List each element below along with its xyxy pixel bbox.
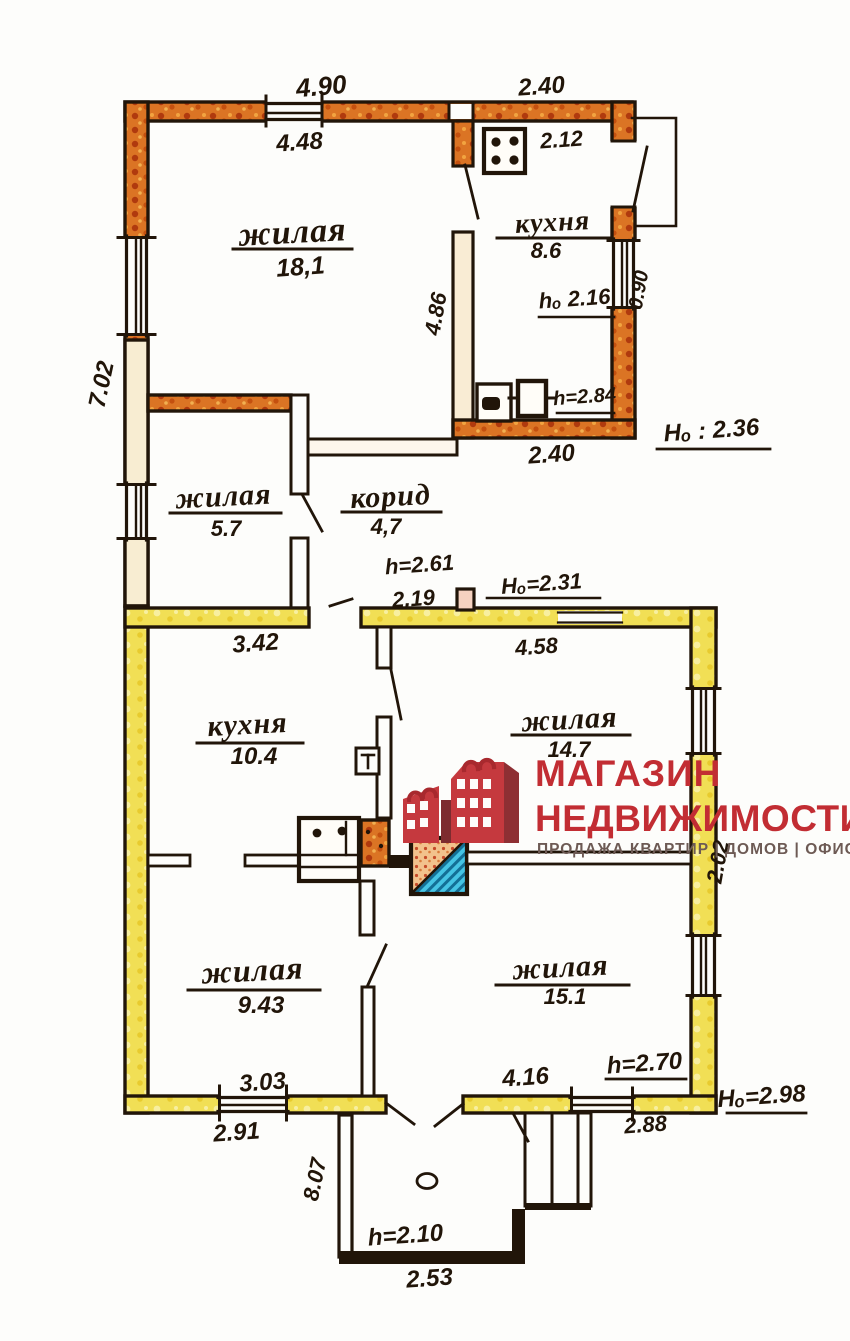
svg-text:8.6: 8.6 [531, 238, 562, 263]
svg-text:кухня: кухня [514, 205, 591, 240]
svg-text:10.4: 10.4 [231, 743, 278, 770]
svg-text:кухня: кухня [207, 706, 289, 743]
svg-text:h=2.84: h=2.84 [552, 384, 616, 410]
svg-text:МАГАЗИН: МАГАЗИН [535, 753, 721, 794]
svg-text:2.53: 2.53 [404, 1263, 454, 1293]
svg-text:2.88: 2.88 [622, 1111, 668, 1139]
svg-text:4.58: 4.58 [513, 633, 559, 661]
svg-text:2.40: 2.40 [526, 439, 576, 469]
svg-text:жилая: жилая [174, 478, 273, 516]
svg-text:2.12: 2.12 [538, 126, 584, 154]
svg-text:3.03: 3.03 [238, 1067, 287, 1097]
svg-text:жилая: жилая [520, 701, 619, 739]
svg-text:9.43: 9.43 [238, 992, 285, 1019]
svg-text:2.40: 2.40 [516, 71, 566, 101]
svg-text:15.1: 15.1 [544, 984, 587, 1009]
svg-text:4.16: 4.16 [500, 1062, 550, 1092]
svg-text:h=2.70: h=2.70 [606, 1047, 684, 1079]
svg-text:18,1: 18,1 [275, 251, 326, 282]
svg-text:2.19: 2.19 [390, 585, 436, 613]
svg-text:h=2.61: h=2.61 [384, 550, 455, 580]
svg-text:2.91: 2.91 [211, 1117, 260, 1147]
svg-text:3.42: 3.42 [231, 628, 280, 658]
svg-text:жилая: жилая [236, 211, 347, 254]
svg-text:h=2.10: h=2.10 [367, 1219, 445, 1251]
svg-text:5.7: 5.7 [211, 516, 243, 541]
svg-text:4.90: 4.90 [294, 69, 349, 103]
svg-text:жилая: жилая [511, 949, 610, 987]
svg-text:hₒ 2.16: hₒ 2.16 [538, 283, 612, 313]
svg-text:ПРОДАЖА КВАРТИР | ДОМОВ | ОФИС: ПРОДАЖА КВАРТИР | ДОМОВ | ОФИСОВ [537, 841, 850, 858]
svg-text:НЕДВИЖИМОСТИ: НЕДВИЖИМОСТИ [535, 798, 850, 839]
svg-text:жилая: жилая [199, 949, 304, 990]
svg-text:4.48: 4.48 [274, 127, 324, 157]
svg-text:4,7: 4,7 [370, 514, 403, 539]
svg-text:корид: корид [349, 478, 431, 515]
